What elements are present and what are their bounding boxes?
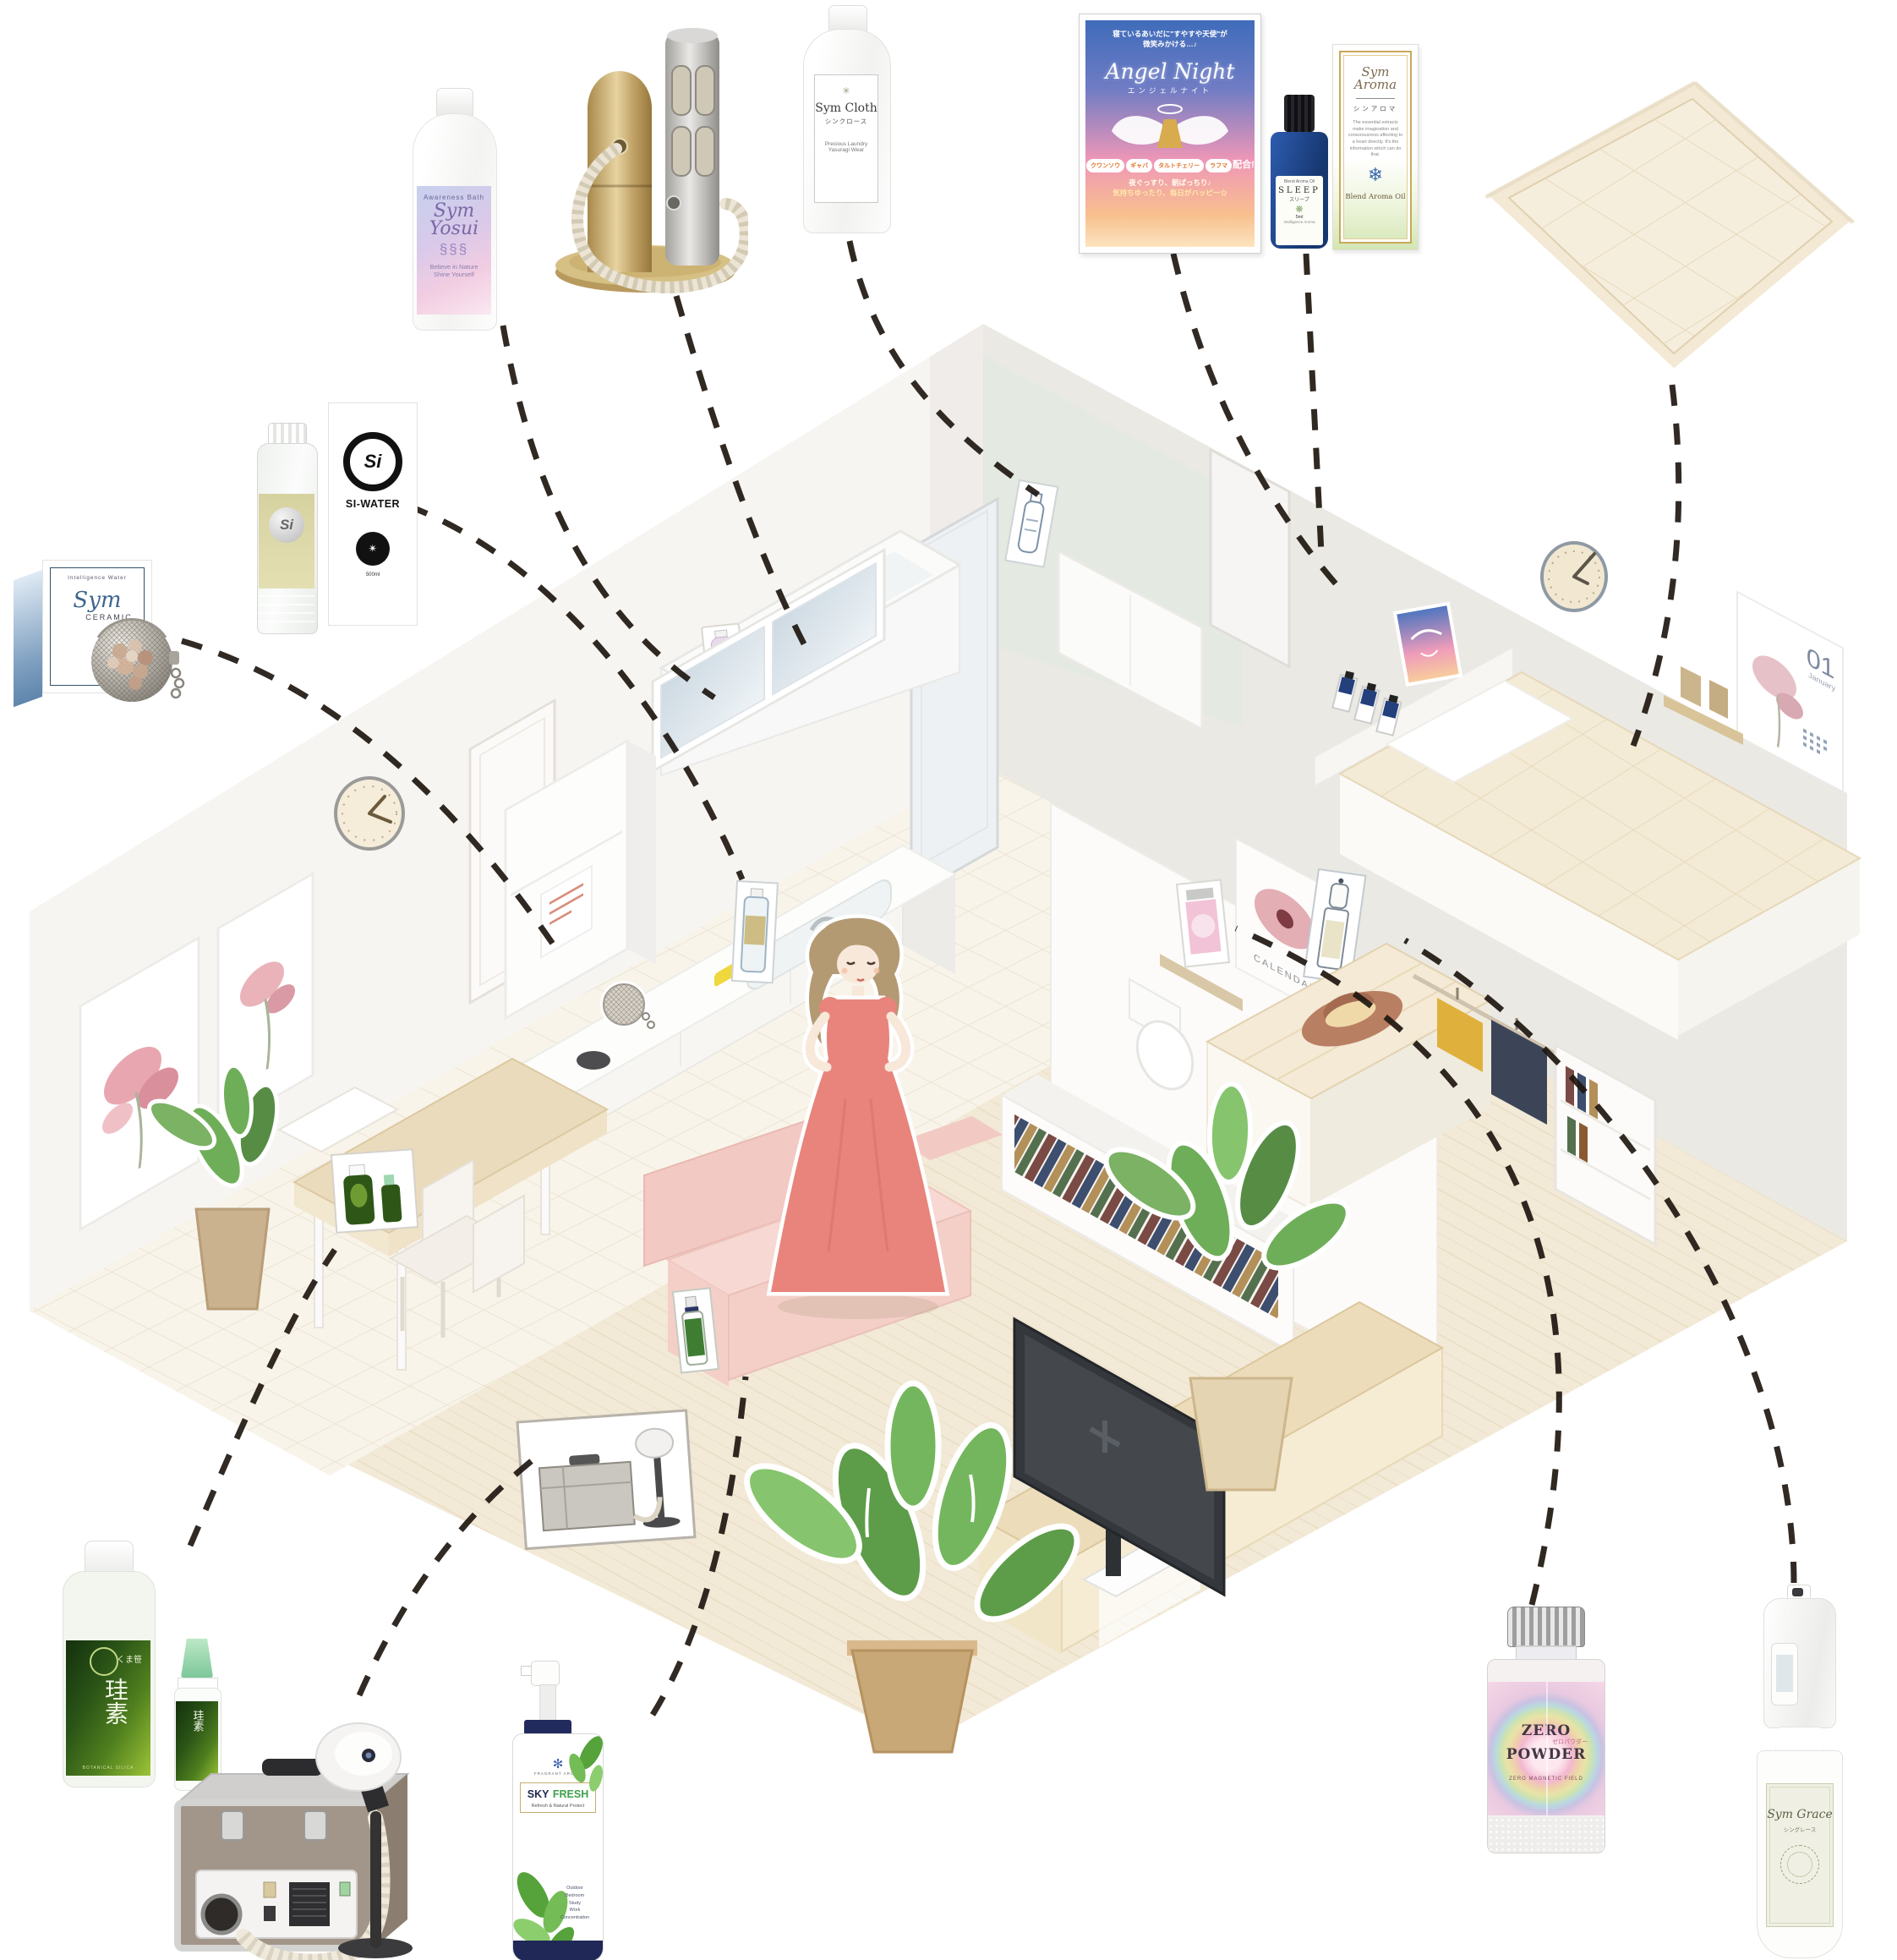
emblem-icon: ✴ <box>356 532 390 566</box>
label-brand: Blend Aroma Oil <box>1276 179 1323 184</box>
mini-si-water-cutout <box>732 881 778 983</box>
flip-cap <box>85 1541 134 1574</box>
label-sub-2: Yasuragi Wear <box>815 147 877 153</box>
window <box>1776 1655 1793 1692</box>
mini-keiso-cutout <box>331 1149 418 1232</box>
bottle-body: ✻ FRAGRANT AROMA SKY FRESH Refresh & Nat… <box>512 1733 604 1960</box>
product-sym-cloth-bottle: ✳ Sym Cloth シンクロース Precious Laundry Yasu… <box>796 5 896 235</box>
badge-suffix: 配合! <box>1233 160 1255 170</box>
product-sym-ceramic: Intelligence Water Sym CERAMIC ✺ <box>5 538 187 714</box>
snowflake-mandala-icon: ❄ <box>1341 164 1410 186</box>
spray-cap <box>181 1639 213 1678</box>
badge-3: タルトチェリー <box>1154 159 1204 172</box>
use-1: Outdoor <box>552 1885 598 1892</box>
pet-bottle: Si <box>250 423 323 634</box>
si-logo-ring: Si <box>343 432 402 491</box>
mini-angel-night-cutout <box>1395 604 1461 685</box>
mini-zero-powder-cutout <box>1177 880 1229 967</box>
powder-window <box>1488 1817 1605 1853</box>
label-title: Sym Yosui <box>424 203 484 238</box>
si-logo-silver: Si <box>269 507 304 543</box>
spray-head <box>531 1661 560 1686</box>
bottle-label: Blend Aroma Oil SLEEP スリープ ❋ 5ml Intelli… <box>1276 176 1323 245</box>
badge-1: クワンソウ <box>1086 159 1124 172</box>
mandala-icon: ❋ <box>1276 204 1323 215</box>
product-si-water: Si Si SI-WATER ✴ 500ml <box>250 402 416 636</box>
title-sky: SKY <box>528 1788 549 1800</box>
bottle-label: Awareness Bath Sym Yosui §§§ Believe in … <box>417 186 491 315</box>
product-bath-water-activator <box>545 7 748 298</box>
product-sym-grace-spray: Sym Grace シングレース <box>1713 1585 1887 1958</box>
bedroom-wall-clock <box>1542 543 1606 610</box>
label-title: SLEEP <box>1276 186 1323 195</box>
use-5: Concentration <box>552 1914 598 1922</box>
spray-stem <box>539 1684 556 1723</box>
aluminum-cap <box>1507 1607 1585 1647</box>
product-zero-powder: ZERO ゼロパウダー POWDER ZERO MAGNETIC FIELD <box>1475 1607 1615 1853</box>
label-title: 珪素 <box>98 1678 132 1749</box>
label-kana: スリープ <box>1276 195 1323 203</box>
box-footer: Blend Aroma Oil <box>1341 193 1410 201</box>
card-footer-2: 気持ちゆったり、毎日がハッピー☆ <box>1085 188 1255 198</box>
label-footer-2: Shine Yourself <box>417 271 491 278</box>
label-sub: Refresh & Natural Protect <box>521 1804 595 1809</box>
card-header-1: 寝ているあいだに"すやすや天使"が <box>1085 29 1255 39</box>
card-header-2: 微笑みかける…♪ <box>1085 39 1255 49</box>
ceramic-mesh-ball <box>86 612 186 712</box>
label-kana: シングレース <box>1767 1825 1833 1833</box>
kitchen-wall-clock <box>336 778 403 849</box>
bottle-cap <box>1284 95 1315 132</box>
uses-list: Outdoor Bedroom Study Work Concentration <box>552 1885 598 1922</box>
bottle-cap <box>436 88 473 117</box>
use-4: Work <box>552 1907 598 1914</box>
dna-helix-icon: §§§ <box>417 241 491 258</box>
product-angel-night-card: 寝ているあいだに"すやすや天使"が 微笑みかける…♪ Angel Night エ… <box>1079 14 1261 254</box>
bottle-label: Si <box>259 494 314 589</box>
card-title: Angel Night <box>1085 59 1255 84</box>
label-footer-1: Believe in Nature <box>417 263 491 271</box>
rainbow-label: ZERO ゼロパウダー POWDER ZERO MAGNETIC FIELD <box>1488 1682 1605 1815</box>
ingredient-badges: クワンソウギャバタルトチェリーラフマ配合! <box>1085 156 1255 172</box>
mini-sky-fresh-cutout <box>673 1288 719 1372</box>
product-room-diagram: 01 January <box>0 0 1897 1960</box>
angel-wings-icon <box>1107 99 1233 153</box>
label-sub-1: Precious Laundry <box>815 141 877 147</box>
bottle-label: くま笹 珪素 BOTANICAL SILICA <box>66 1640 150 1776</box>
sun-icon: ✳ <box>815 85 877 96</box>
box-title: SI-WATER <box>329 498 417 510</box>
bottle-label: Sym Grace シングレース <box>1766 1783 1834 1927</box>
big-bottle: くま笹 珪素 BOTANICAL SILICA <box>56 1541 161 1788</box>
bottle-body: ZERO ゼロパウダー POWDER ZERO MAGNETIC FIELD <box>1487 1659 1605 1853</box>
neck-taper <box>1775 1727 1824 1752</box>
label-note: BOTANICAL SILICA <box>66 1766 150 1771</box>
product-sym-aroma-box: Sym Aroma シンアロマ The essential extracts m… <box>1332 44 1419 250</box>
leaves-top-icon <box>554 1734 603 1795</box>
lace-mandala-icon <box>1780 1845 1819 1884</box>
badge-4: ラフマ <box>1205 159 1232 172</box>
mini-fogger-cutout <box>517 1410 695 1549</box>
box-side-face <box>14 570 42 707</box>
label-title: Sym Cloth <box>815 101 877 115</box>
product-mist-diffuser-machine <box>162 1693 426 1960</box>
box-size: 500ml <box>329 572 417 578</box>
label-brand: くま笹 <box>117 1652 142 1665</box>
card-footer-1: 夜ぐっすり、朝ぱっちり♪ <box>1085 178 1255 188</box>
gold-frame: Sym Aroma シンアロマ The essential extracts m… <box>1339 51 1412 244</box>
box-title: Sym <box>51 588 144 613</box>
product-sky-fresh-spray: ✻ FRAGRANT AROMA SKY FRESH Refresh & Nat… <box>506 1657 612 1960</box>
label-title: Sym Grace <box>1767 1808 1833 1821</box>
box-description: The essential extracts make imagination … <box>1341 120 1410 159</box>
card-kana: エンジェルナイト <box>1085 85 1255 96</box>
use-3: Study <box>552 1900 598 1908</box>
si-water-box: Si SI-WATER ✴ 500ml <box>328 402 418 626</box>
product-quilted-bed-pad <box>1481 74 1861 379</box>
label-series: Intelligence Aroma <box>1276 220 1323 224</box>
badge-2: ギャバ <box>1126 159 1152 172</box>
box-title: Sym Aroma <box>1350 66 1401 91</box>
bottle-texture <box>259 592 314 629</box>
box-header: Intelligence Water <box>51 575 144 581</box>
card-art: 寝ているあいだに"すやすや天使"が 微笑みかける…♪ Angel Night エ… <box>1085 20 1255 247</box>
product-sleep-aroma-oil: Blend Aroma Oil SLEEP スリープ ❋ 5ml Intelli… <box>1266 95 1333 250</box>
product-sym-yosui-bottle: Awareness Bath Sym Yosui §§§ Believe in … <box>402 88 506 333</box>
nozzle-dot <box>1792 1588 1803 1596</box>
bottle-body: Sym Grace シングレース <box>1757 1750 1843 1958</box>
spray-head <box>1763 1598 1836 1728</box>
box-kana: シンアロマ <box>1341 104 1410 113</box>
silver-cartridge <box>665 28 719 266</box>
bottom-band <box>513 1941 603 1960</box>
ring-logo <box>90 1647 118 1676</box>
bottle-label: ✳ Sym Cloth シンクロース Precious Laundry Yasu… <box>814 74 878 203</box>
label-kana: シンクロース <box>815 117 877 126</box>
use-2: Bedroom <box>552 1892 598 1900</box>
